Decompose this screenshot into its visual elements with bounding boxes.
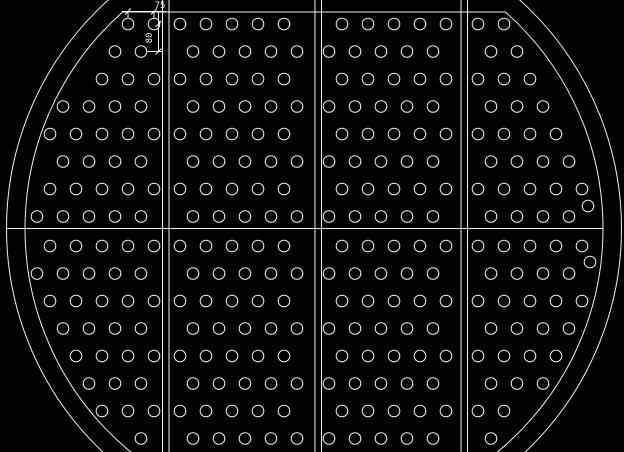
tube-hole <box>537 268 549 280</box>
tube-hole <box>511 378 523 390</box>
tubesheet-drawing-canvas[interactable]: 75 80 <box>0 0 624 452</box>
tube-hole <box>278 73 290 85</box>
tube-hole <box>187 211 199 223</box>
tube-hole <box>239 378 251 390</box>
tube-hole <box>537 211 549 223</box>
tube-hole <box>563 323 575 335</box>
tube-hole <box>485 46 497 58</box>
tube-hole <box>96 73 108 85</box>
tube-hole <box>226 405 238 417</box>
cad-viewport: 75 80 <box>0 0 624 452</box>
tube-hole <box>83 323 95 335</box>
tube-hole <box>213 211 225 223</box>
tube-hole <box>427 211 439 223</box>
tube-hole <box>362 240 374 252</box>
drawing-geometry <box>7 0 622 452</box>
tube-hole <box>278 350 290 362</box>
tube-hole <box>291 433 303 445</box>
tube-hole <box>96 240 108 252</box>
tube-hole <box>498 73 510 85</box>
tube-hole <box>584 256 596 268</box>
tube-hole <box>388 128 400 140</box>
tube-hole <box>57 323 69 335</box>
tube-hole <box>187 156 199 168</box>
tube-hole <box>524 128 536 140</box>
tube-hole <box>440 240 452 252</box>
tube-hole <box>239 268 251 280</box>
tube-hole <box>174 350 186 362</box>
tube-hole <box>401 46 413 58</box>
tube-hole <box>388 350 400 362</box>
tube-hole <box>427 101 439 113</box>
tube-hole <box>187 433 199 445</box>
tube-hole <box>401 268 413 280</box>
tube-hole <box>550 183 562 195</box>
tube-hole <box>511 323 523 335</box>
tube-hole <box>83 101 95 113</box>
tube-hole <box>427 46 439 58</box>
tube-hole <box>213 323 225 335</box>
tube-hole <box>485 156 497 168</box>
tube-hole <box>213 156 225 168</box>
tube-hole <box>349 323 361 335</box>
tube-hole <box>388 405 400 417</box>
tube-hole <box>472 128 484 140</box>
tube-hole <box>265 378 277 390</box>
dimension-label-horizontal-pitch: 75 <box>155 1 166 11</box>
outer-shell-circle <box>7 0 622 452</box>
tube-hole <box>472 73 484 85</box>
tube-hole <box>375 433 387 445</box>
tube-hole <box>388 18 400 30</box>
tube-hole <box>148 183 160 195</box>
tube-hole <box>388 295 400 307</box>
tube-hole <box>200 73 212 85</box>
tube-hole <box>427 433 439 445</box>
tube-hole <box>524 240 536 252</box>
tube-hole <box>265 433 277 445</box>
tube-hole <box>498 128 510 140</box>
tube-hole <box>498 350 510 362</box>
tube-hole <box>109 323 121 335</box>
tube-hole <box>323 211 335 223</box>
tube-hole <box>362 350 374 362</box>
tube-hole <box>472 295 484 307</box>
tube-hole <box>148 295 160 307</box>
tube-hole <box>109 46 121 58</box>
tube-hole <box>44 128 56 140</box>
tube-hole <box>375 101 387 113</box>
tube-hole <box>187 101 199 113</box>
tube-hole <box>511 156 523 168</box>
tube-hole <box>511 101 523 113</box>
tube-hole <box>200 350 212 362</box>
tube-hole <box>291 268 303 280</box>
tube-hole <box>96 350 108 362</box>
tube-hole <box>174 128 186 140</box>
tube-hole <box>563 156 575 168</box>
tube-hole <box>200 405 212 417</box>
tube-hole <box>323 46 335 58</box>
tube-hole <box>174 240 186 252</box>
tube-hole <box>362 18 374 30</box>
tube-hole <box>323 156 335 168</box>
tube-hole <box>427 323 439 335</box>
tube-hole <box>414 405 426 417</box>
tube-hole <box>336 183 348 195</box>
tube-hole <box>550 295 562 307</box>
tube-hole <box>96 405 108 417</box>
tube-hole <box>252 128 264 140</box>
tube-hole <box>174 405 186 417</box>
tube-hole <box>414 350 426 362</box>
tube-hole <box>252 350 264 362</box>
tube-hole <box>375 211 387 223</box>
tube-hole <box>70 295 82 307</box>
tube-hole <box>388 240 400 252</box>
tube-hole <box>472 405 484 417</box>
tube-hole <box>414 73 426 85</box>
tube-hole <box>265 46 277 58</box>
tube-hole <box>187 46 199 58</box>
tube-hole <box>226 240 238 252</box>
tube-hole <box>200 240 212 252</box>
tube-hole <box>414 18 426 30</box>
tube-hole <box>291 378 303 390</box>
tube-hole <box>323 268 335 280</box>
tube-hole <box>148 350 160 362</box>
tube-hole <box>375 268 387 280</box>
tube-hole <box>200 128 212 140</box>
tube-hole <box>70 183 82 195</box>
tube-hole <box>524 295 536 307</box>
tube-hole <box>291 101 303 113</box>
tube-hole <box>498 18 510 30</box>
tube-hole <box>537 378 549 390</box>
tube-hole <box>44 183 56 195</box>
tube-hole <box>472 183 484 195</box>
tube-hole <box>401 378 413 390</box>
tube-hole <box>440 183 452 195</box>
tube-hole <box>498 240 510 252</box>
tube-hole <box>122 405 134 417</box>
tube-hole <box>278 18 290 30</box>
tube-hole <box>291 323 303 335</box>
tube-hole <box>323 378 335 390</box>
tube-hole <box>401 433 413 445</box>
tube-hole <box>239 433 251 445</box>
tube-hole <box>427 268 439 280</box>
tube-hole <box>265 101 277 113</box>
tube-hole <box>187 268 199 280</box>
tube-hole <box>226 18 238 30</box>
tube-hole <box>440 295 452 307</box>
tube-hole <box>524 73 536 85</box>
tube-hole <box>174 183 186 195</box>
tube-hole <box>472 18 484 30</box>
tube-hole <box>148 73 160 85</box>
tube-hole <box>83 211 95 223</box>
tube-hole <box>252 240 264 252</box>
tube-hole <box>70 128 82 140</box>
tube-hole <box>440 73 452 85</box>
tube-hole <box>278 405 290 417</box>
tube-hole <box>135 433 147 445</box>
tube-hole <box>70 350 82 362</box>
tube-hole <box>200 183 212 195</box>
tube-hole <box>57 268 69 280</box>
tube-hole <box>336 73 348 85</box>
tube-hole <box>291 211 303 223</box>
tube-hole <box>109 156 121 168</box>
tube-hole <box>524 350 536 362</box>
tube-hole <box>148 240 160 252</box>
tube-hole <box>252 405 264 417</box>
tube-hole <box>96 183 108 195</box>
tube-hole <box>537 156 549 168</box>
tube-hole <box>349 101 361 113</box>
tube-hole <box>472 240 484 252</box>
tube-hole <box>122 73 134 85</box>
tube-hole <box>278 128 290 140</box>
tube-hole <box>401 323 413 335</box>
tube-hole <box>563 211 575 223</box>
tube-hole <box>83 378 95 390</box>
tube-hole <box>440 350 452 362</box>
tube-hole <box>239 46 251 58</box>
tube-hole <box>44 295 56 307</box>
tube-hole <box>537 101 549 113</box>
tube-hole <box>349 46 361 58</box>
tube-hole <box>174 18 186 30</box>
tube-hole <box>336 405 348 417</box>
tube-hole <box>148 405 160 417</box>
tube-hole <box>213 378 225 390</box>
tube-hole <box>252 18 264 30</box>
tube-hole <box>336 240 348 252</box>
tube-hole <box>239 101 251 113</box>
tube-hole <box>375 378 387 390</box>
tube-hole <box>200 18 212 30</box>
tube-hole <box>472 350 484 362</box>
tube-hole <box>122 128 134 140</box>
tube-hole <box>96 295 108 307</box>
tube-hole <box>122 295 134 307</box>
tube-hole <box>213 268 225 280</box>
tube-hole <box>135 378 147 390</box>
tube-hole <box>226 128 238 140</box>
tube-hole <box>550 128 562 140</box>
tube-hole <box>485 378 497 390</box>
tube-hole <box>511 46 523 58</box>
tube-hole <box>414 183 426 195</box>
tube-hole <box>135 211 147 223</box>
tube-hole <box>414 128 426 140</box>
tube-hole <box>336 128 348 140</box>
tube-hole <box>213 101 225 113</box>
tube-hole <box>336 295 348 307</box>
tube-hole <box>44 240 56 252</box>
tube-hole <box>278 240 290 252</box>
tube-hole <box>252 295 264 307</box>
tube-hole <box>278 183 290 195</box>
tube-hole <box>239 323 251 335</box>
tube-hole <box>109 378 121 390</box>
tube-hole <box>252 73 264 85</box>
tube-hole <box>109 268 121 280</box>
tube-hole <box>336 18 348 30</box>
tube-hole <box>323 101 335 113</box>
tube-hole <box>31 268 43 280</box>
tube-hole <box>511 211 523 223</box>
tube-hole <box>375 46 387 58</box>
tube-hole <box>498 295 510 307</box>
tube-hole <box>291 156 303 168</box>
tube-hole <box>135 323 147 335</box>
tube-hole <box>148 128 160 140</box>
tube-hole <box>576 183 588 195</box>
tube-hole <box>239 156 251 168</box>
tube-hole <box>563 268 575 280</box>
tube-hole <box>122 240 134 252</box>
tube-hole <box>440 18 452 30</box>
tube-hole <box>187 378 199 390</box>
tube-hole <box>427 156 439 168</box>
tube-hole <box>362 73 374 85</box>
tube-hole <box>226 295 238 307</box>
tube-hole <box>576 295 588 307</box>
tube-hole <box>362 183 374 195</box>
tube-hole <box>349 378 361 390</box>
tube-hole <box>135 268 147 280</box>
tube-hole <box>336 350 348 362</box>
tube-hole <box>252 183 264 195</box>
tube-hole <box>265 211 277 223</box>
tube-hole <box>323 433 335 445</box>
tube-hole <box>414 295 426 307</box>
tube-hole <box>96 128 108 140</box>
tube-hole <box>323 323 335 335</box>
tube-hole <box>135 156 147 168</box>
tube-hole <box>265 323 277 335</box>
tube-hole <box>550 240 562 252</box>
tube-hole <box>57 156 69 168</box>
tube-hole <box>375 323 387 335</box>
tube-hole <box>265 268 277 280</box>
tube-hole <box>278 295 290 307</box>
tube-hole <box>485 101 497 113</box>
tube-hole <box>427 378 439 390</box>
tube-hole <box>375 156 387 168</box>
tube-hole <box>213 433 225 445</box>
tube-hole <box>226 183 238 195</box>
tube-hole <box>83 268 95 280</box>
tube-hole <box>122 18 134 30</box>
tube-hole <box>582 200 594 212</box>
dimension-label-vertical-pitch: 80 <box>145 33 155 44</box>
tube-hole <box>135 101 147 113</box>
tube-hole <box>362 295 374 307</box>
tube-hole <box>401 211 413 223</box>
tube-hole <box>213 46 225 58</box>
tube-hole <box>200 295 212 307</box>
tube-hole <box>362 128 374 140</box>
tube-hole <box>109 101 121 113</box>
tube-hole <box>349 268 361 280</box>
tube-hole <box>524 183 536 195</box>
tube-hole <box>122 350 134 362</box>
tube-hole <box>83 156 95 168</box>
tube-hole <box>174 73 186 85</box>
tube-hole <box>265 156 277 168</box>
inner-plate-boundary <box>25 12 603 452</box>
tube-hole <box>122 183 134 195</box>
tube-hole <box>362 405 374 417</box>
tube-hole <box>226 73 238 85</box>
tube-hole <box>576 240 588 252</box>
tube-hole <box>349 433 361 445</box>
tube-hole <box>414 240 426 252</box>
tube-hole <box>498 183 510 195</box>
tube-hole <box>485 211 497 223</box>
tube-hole <box>550 350 562 362</box>
tube-hole <box>57 211 69 223</box>
tube-hole <box>401 156 413 168</box>
tube-hole <box>511 268 523 280</box>
tube-hole <box>485 323 497 335</box>
tube-hole <box>135 46 147 58</box>
tube-hole <box>401 101 413 113</box>
tube-hole <box>498 405 510 417</box>
tube-hole <box>174 295 186 307</box>
tube-hole <box>388 183 400 195</box>
tube-hole <box>388 73 400 85</box>
tube-hole <box>440 405 452 417</box>
tube-hole <box>70 240 82 252</box>
tube-hole <box>537 323 549 335</box>
tube-hole <box>291 46 303 58</box>
tube-hole <box>187 323 199 335</box>
tube-hole <box>226 350 238 362</box>
tube-hole <box>349 211 361 223</box>
tube-hole <box>485 268 497 280</box>
tube-hole <box>349 156 361 168</box>
tube-hole <box>57 101 69 113</box>
tube-hole <box>109 211 121 223</box>
tube-hole <box>239 211 251 223</box>
tube-hole <box>485 433 497 445</box>
tube-hole <box>31 211 43 223</box>
tube-hole <box>440 128 452 140</box>
